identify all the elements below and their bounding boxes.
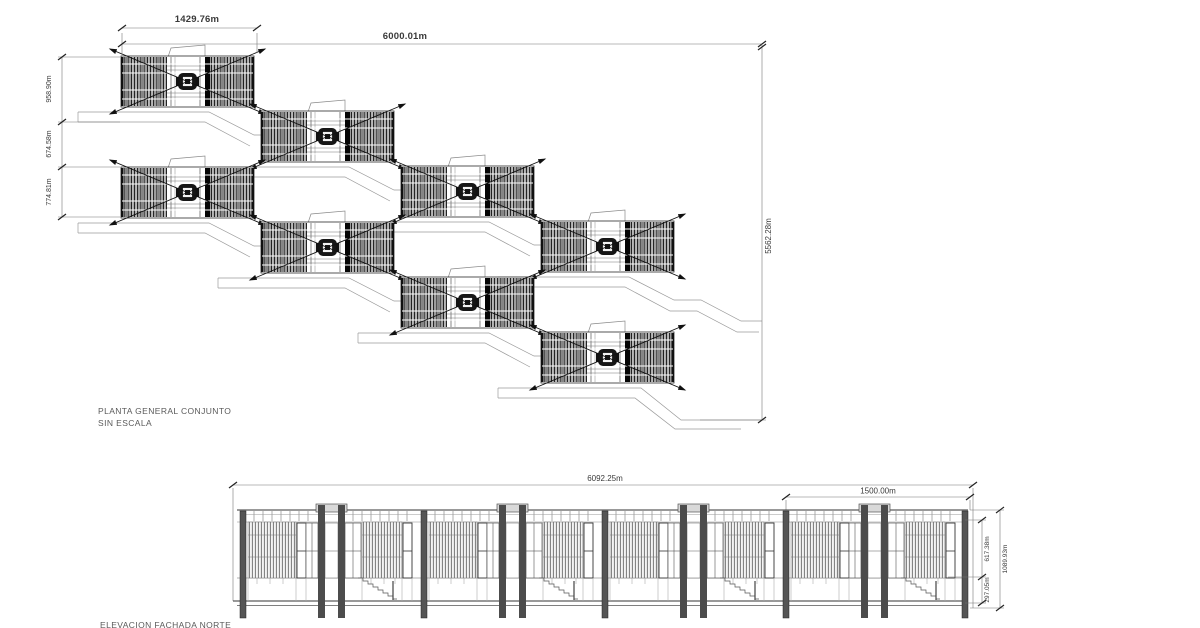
elevation-view: 6092.25m 1500.00m (100, 474, 1009, 628)
plan-unit-a1 (110, 45, 265, 114)
elevation-title: ELEVACION FACHADA NORTE (100, 620, 231, 628)
walkway-b4 (498, 388, 762, 429)
plan-unit-b1 (110, 156, 265, 225)
dim-label-elev-total-width: 6092.25m (587, 474, 623, 483)
dim-plan-total-width (118, 41, 766, 47)
dim-label-plan-total-height: 5562.28m (764, 218, 773, 254)
dim-label-elev-module-width: 1500.00m (860, 487, 896, 496)
plan-unit-a4 (530, 210, 685, 279)
dim-label-left-lower: 774.81m (46, 178, 53, 205)
plan-unit-b4 (530, 321, 685, 390)
elev-edge-column-end (962, 511, 968, 618)
dim-label-elev-right-upper: 617.38m (984, 536, 991, 561)
architectural-drawing-sheet: 1429.76m 6000.01m 958.90m 674.58m 774.81… (0, 0, 1200, 628)
plan-unit-b2 (250, 211, 405, 280)
plan-title: PLANTA GENERAL CONJUNTO (98, 406, 231, 416)
drawing-canvas: 1429.76m 6000.01m 958.90m 674.58m 774.81… (0, 0, 1200, 628)
walkway-a4 (498, 277, 762, 332)
dim-plan-total-height (700, 44, 766, 423)
dim-label-elev-total-height: 1089.93m (1002, 545, 1009, 574)
dim-label-left-middle: 674.58m (46, 130, 53, 157)
dim-label-elev-right-lower: 297.05m (984, 577, 991, 602)
plan-unit-a2 (250, 100, 405, 169)
plan-scale-note: SIN ESCALA (98, 418, 152, 428)
plan-unit-a3 (390, 155, 545, 224)
dim-label-left-upper: 958.90m (46, 75, 53, 102)
dim-plan-left-chain (58, 54, 120, 220)
plan-unit-b3 (390, 266, 545, 335)
dim-label-unit-width: 1429.76m (175, 14, 219, 25)
plan-view: 1429.76m 6000.01m 958.90m 674.58m 774.81… (46, 14, 773, 429)
dim-label-total-width: 6000.01m (383, 31, 427, 42)
